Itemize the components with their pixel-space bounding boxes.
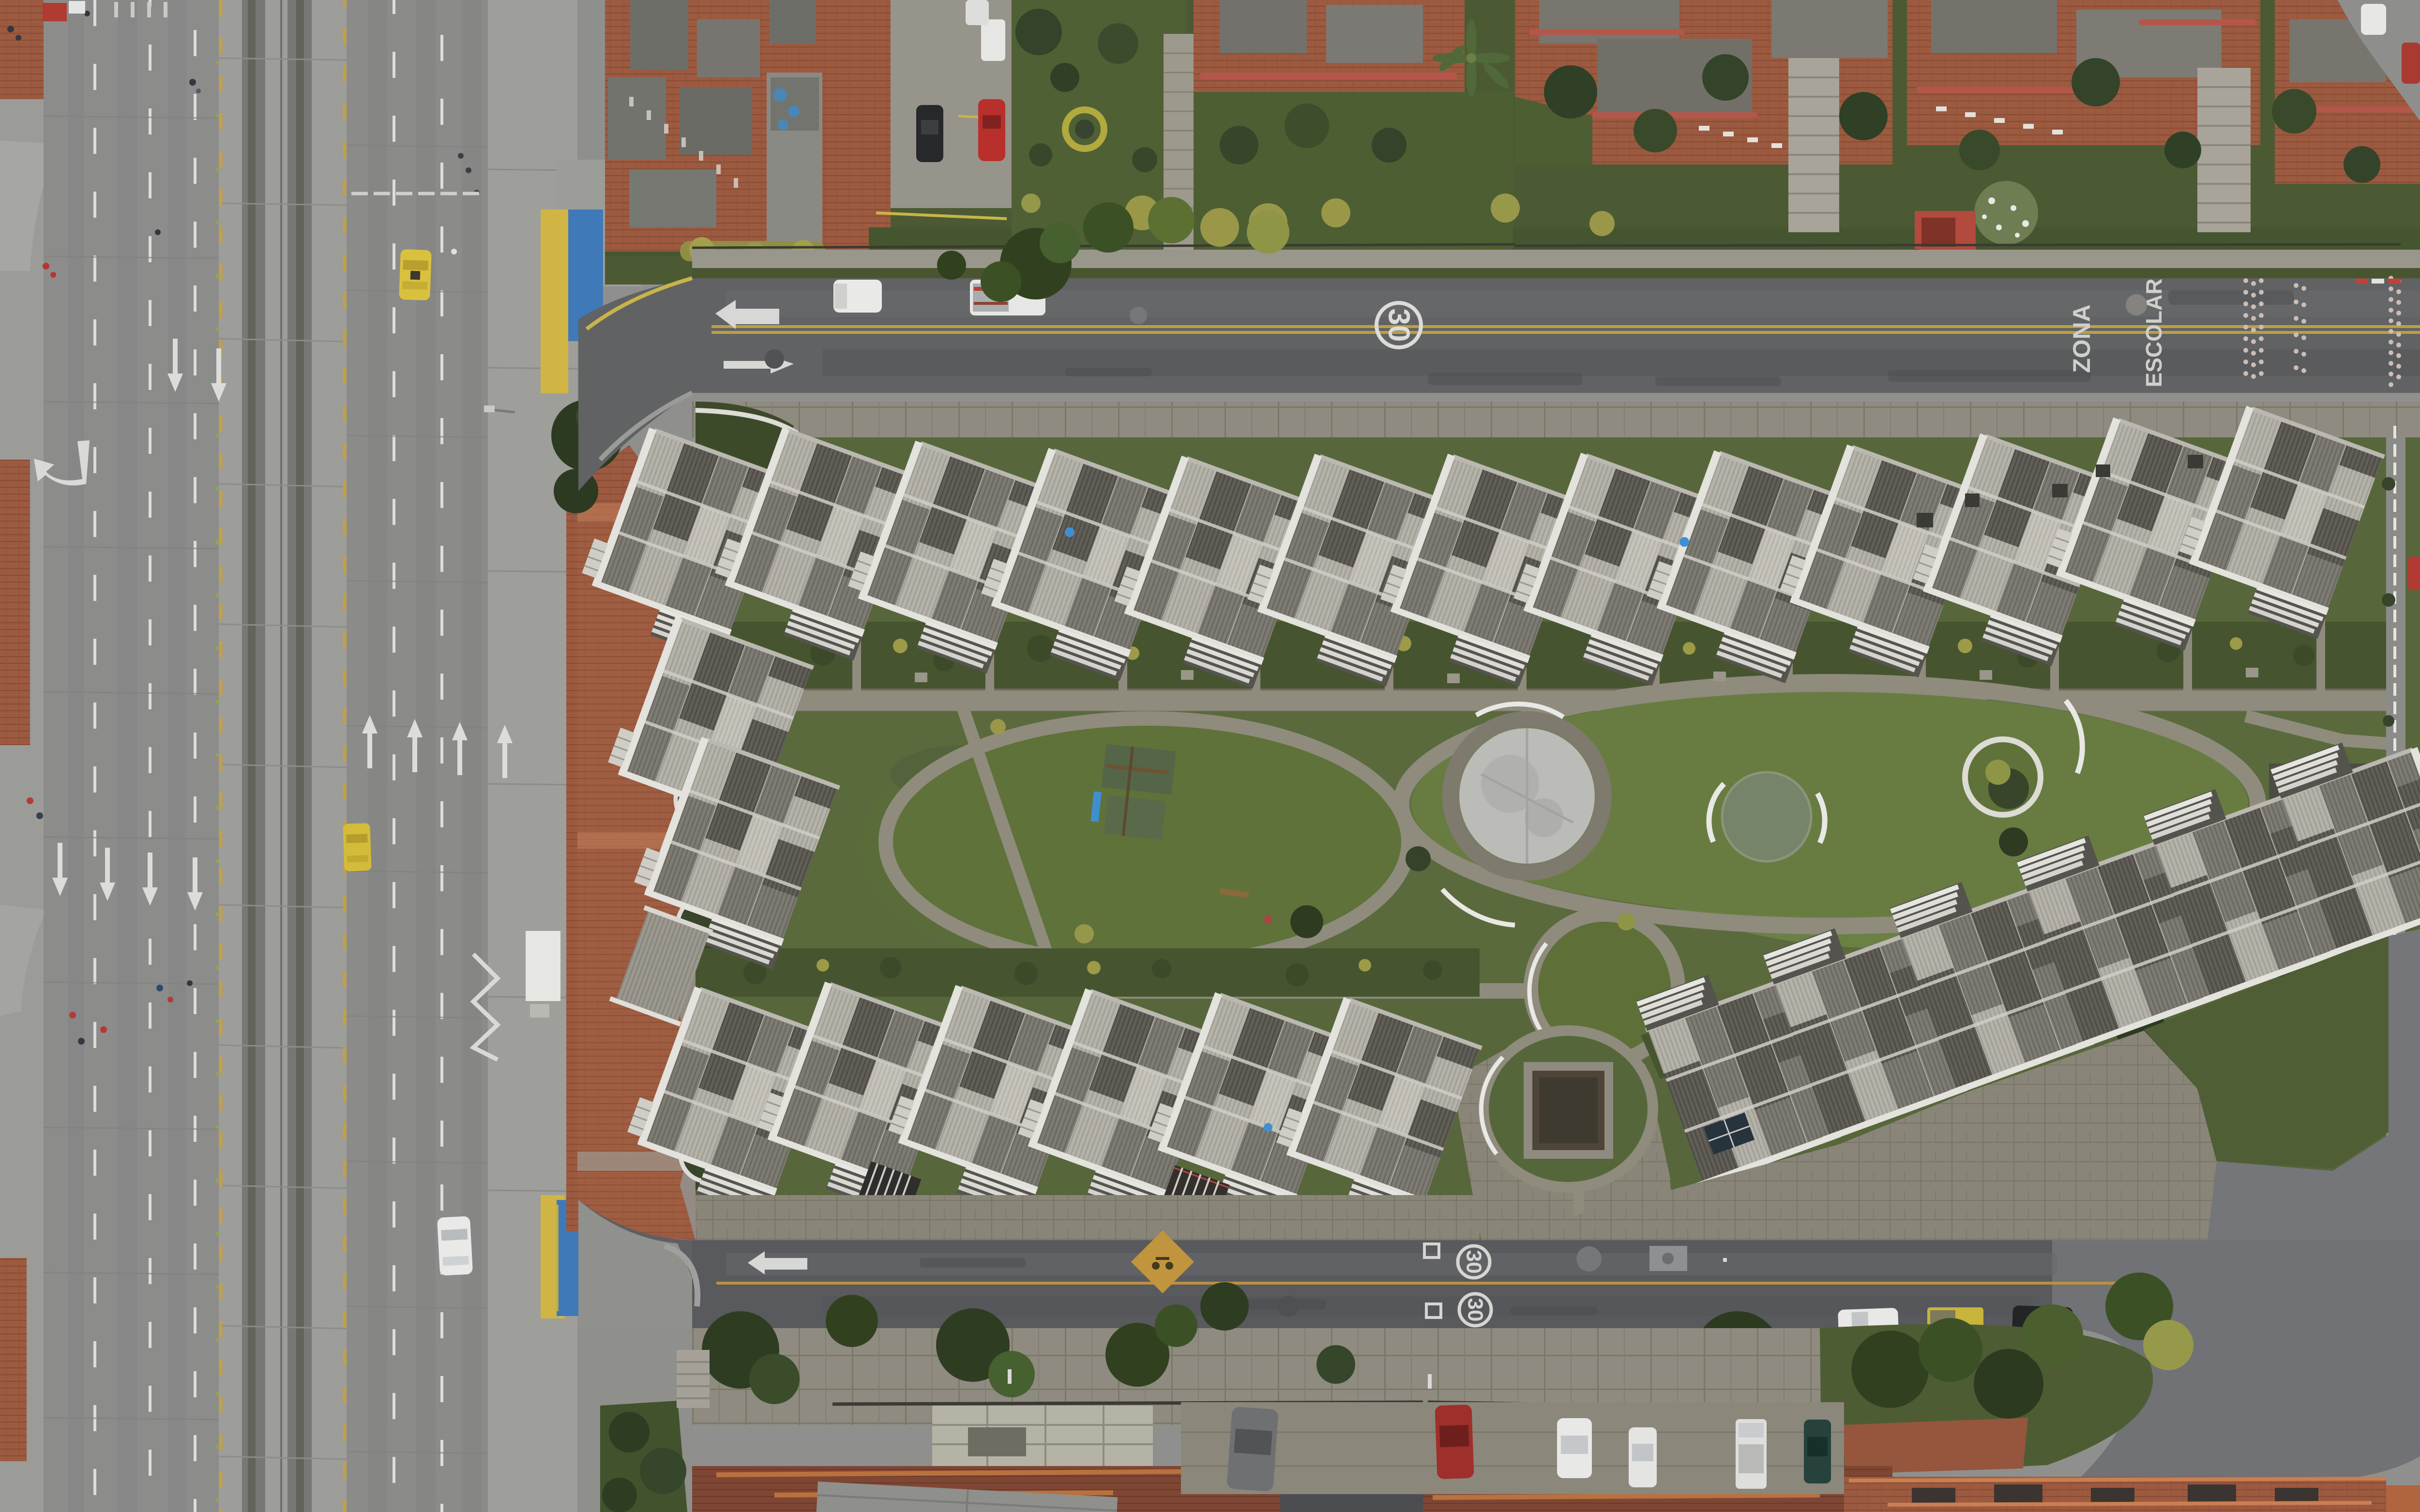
svg-text:30: 30 [1464,1298,1487,1322]
svg-text:ESCOLAR: ESCOLAR [2141,279,2166,388]
svg-text:ZONA: ZONA [2068,304,2095,373]
svg-text:30: 30 [1462,1250,1486,1274]
svg-text:30: 30 [1382,309,1416,342]
